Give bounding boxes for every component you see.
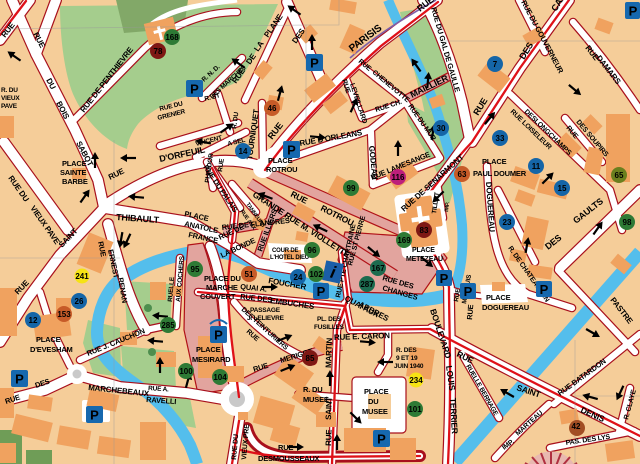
svg-text:14: 14: [239, 147, 248, 156]
svg-text:P: P: [214, 328, 223, 343]
svg-text:9 ET 19: 9 ET 19: [396, 355, 418, 362]
svg-text:287: 287: [360, 280, 374, 289]
svg-text:83: 83: [420, 226, 429, 235]
svg-text:85: 85: [306, 354, 315, 363]
svg-text:P: P: [464, 284, 473, 299]
svg-text:30: 30: [437, 124, 446, 133]
svg-text:ROTROU: ROTROU: [266, 165, 297, 174]
svg-text:JUIN 1940: JUIN 1940: [394, 363, 424, 370]
svg-text:P: P: [15, 372, 24, 387]
svg-text:24: 24: [294, 273, 303, 282]
svg-text:46: 46: [268, 104, 277, 113]
svg-text:P: P: [310, 56, 319, 71]
svg-text:P: P: [190, 82, 199, 97]
svg-text:MESIRARD: MESIRARD: [192, 355, 231, 364]
svg-text:PLACE: PLACE: [364, 387, 389, 396]
svg-text:RUE: RUE: [324, 429, 334, 446]
svg-text:VIEUX: VIEUX: [1, 95, 20, 102]
svg-text:P: P: [317, 284, 326, 299]
svg-text:241: 241: [75, 272, 89, 281]
svg-text:PLACE: PLACE: [482, 157, 507, 166]
svg-text:51: 51: [245, 270, 254, 279]
svg-text:PLACE: PLACE: [196, 345, 221, 354]
svg-text:PAVE: PAVE: [1, 103, 18, 110]
svg-text:169: 169: [397, 236, 411, 245]
svg-text:26: 26: [75, 297, 84, 306]
svg-text:P: P: [90, 408, 99, 423]
svg-text:PLACE: PLACE: [36, 335, 61, 344]
svg-text:12: 12: [29, 316, 38, 325]
svg-text:95: 95: [191, 265, 200, 274]
svg-text:96: 96: [308, 246, 317, 255]
svg-text:33: 33: [496, 134, 505, 143]
svg-text:PLACE: PLACE: [486, 293, 511, 302]
svg-text:23: 23: [503, 218, 512, 227]
svg-text:R. DU: R. DU: [1, 87, 18, 94]
svg-text:COUVERT: COUVERT: [200, 292, 236, 301]
svg-text:15: 15: [558, 184, 567, 193]
svg-text:MUSEE: MUSEE: [303, 395, 329, 404]
svg-text:99: 99: [347, 184, 356, 193]
svg-text:116: 116: [392, 173, 405, 182]
svg-text:104: 104: [213, 373, 227, 382]
svg-text:P: P: [377, 432, 386, 447]
svg-text:PASSAGE: PASSAGE: [250, 307, 281, 314]
svg-text:COUR DE: COUR DE: [272, 248, 298, 254]
svg-text:D'EVESHAM: D'EVESHAM: [30, 345, 73, 354]
svg-text:234: 234: [409, 376, 423, 385]
svg-text:MUSEE: MUSEE: [362, 407, 388, 416]
svg-text:168: 168: [165, 33, 179, 42]
svg-text:BARBE: BARBE: [62, 177, 88, 186]
svg-text:63: 63: [458, 170, 467, 179]
svg-text:P: P: [540, 282, 549, 297]
svg-text:7: 7: [493, 60, 498, 69]
svg-text:78: 78: [154, 47, 163, 56]
svg-text:PLACE: PLACE: [412, 247, 435, 254]
svg-text:102: 102: [309, 270, 323, 279]
svg-text:RUE: RUE: [465, 304, 475, 320]
svg-text:98: 98: [623, 218, 632, 227]
svg-text:L'HOTEL DIEU: L'HOTEL DIEU: [270, 255, 309, 261]
svg-text:P: P: [440, 271, 449, 286]
svg-text:FUSILLES: FUSILLES: [314, 324, 345, 331]
svg-text:11: 11: [532, 162, 541, 171]
svg-text:R. DU: R. DU: [303, 385, 322, 394]
svg-text:PLACE DU: PLACE DU: [204, 274, 241, 283]
svg-text:MARCHE: MARCHE: [206, 283, 238, 292]
svg-text:TERRIER: TERRIER: [448, 398, 460, 434]
svg-text:167: 167: [371, 264, 385, 273]
svg-text:100: 100: [179, 367, 193, 376]
svg-text:RUE A.: RUE A.: [148, 385, 169, 393]
svg-text:P: P: [629, 4, 638, 19]
svg-text:PAUL DOUMER: PAUL DOUMER: [473, 169, 527, 178]
svg-text:DOGUEREAU: DOGUEREAU: [482, 303, 529, 312]
svg-text:SAINTE: SAINTE: [60, 168, 87, 177]
svg-text:101: 101: [408, 405, 422, 414]
svg-text:MARTIN: MARTIN: [324, 337, 334, 368]
svg-text:PLACE: PLACE: [62, 159, 87, 168]
svg-text:42: 42: [572, 422, 581, 431]
svg-text:285: 285: [161, 321, 175, 330]
svg-text:R. DES: R. DES: [396, 347, 417, 354]
svg-text:153: 153: [57, 310, 71, 319]
svg-text:DESMOUSSEAUX: DESMOUSSEAUX: [258, 454, 320, 463]
svg-text:DU: DU: [368, 397, 378, 406]
svg-text:PL. DES: PL. DES: [317, 316, 342, 323]
svg-text:P: P: [287, 143, 296, 158]
svg-text:65: 65: [615, 171, 624, 180]
